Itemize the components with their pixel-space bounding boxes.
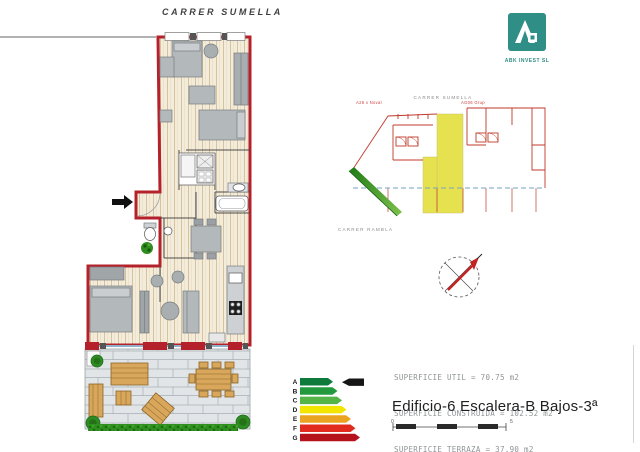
energy-grade-row: F — [293, 425, 355, 433]
svg-text:F: F — [293, 426, 297, 433]
terrace — [85, 342, 250, 431]
hedge — [88, 424, 238, 431]
svg-text:C: C — [293, 398, 298, 405]
building-label-left: A26 x Noval — [356, 100, 382, 105]
energy-grade-row: C — [293, 397, 342, 405]
sofa — [183, 291, 199, 333]
compass-icon — [432, 250, 488, 306]
scale-min: 0 — [391, 419, 394, 425]
desk — [160, 57, 174, 77]
scale-max: 5 — [510, 419, 513, 425]
highlight-unit — [423, 114, 463, 213]
stove — [229, 301, 242, 315]
kitchen-counter — [227, 266, 244, 334]
toilet — [144, 223, 156, 241]
wardrobe — [140, 291, 149, 333]
kitchen-unit — [179, 153, 215, 185]
surface-terrace: SUPERFICIE TERRAZA = 37.90 m2 — [394, 444, 624, 452]
energy-grade-row: D — [293, 406, 347, 414]
company-logo: ABK INVEST SL — [498, 13, 556, 64]
tv-stand — [209, 333, 225, 342]
company-name: ABK INVEST SL — [498, 58, 556, 64]
bed — [172, 41, 202, 77]
drawing-sheet: CARRER SUMELLA — [0, 0, 640, 452]
bed — [199, 110, 245, 140]
dresser — [189, 86, 215, 104]
rating-pointer-icon — [342, 379, 364, 386]
energy-grade-row: B — [293, 387, 338, 395]
wardrobe — [234, 53, 248, 105]
terrace-side-table — [116, 391, 131, 405]
site-street-bottom: CARRER RAMBLA — [338, 227, 393, 232]
chair — [172, 271, 184, 283]
site-plan-drawing: CARRER SUMELLA A26 x Noval AG06 Grup CAR… — [336, 85, 566, 240]
scale-bar: 0 5 — [390, 416, 520, 434]
bathtub — [216, 196, 248, 211]
green-strip — [349, 167, 402, 216]
energy-rating-chart: A B C D E F G — [288, 368, 392, 446]
svg-text:E: E — [293, 416, 298, 423]
svg-text:A: A — [293, 379, 298, 386]
sheet-border-line — [633, 345, 634, 443]
terrace-lounger — [89, 384, 103, 417]
terrace-table — [111, 363, 148, 385]
energy-grade-row: G — [292, 434, 360, 442]
svg-text:D: D — [293, 407, 298, 414]
energy-grade-row: E — [293, 415, 351, 423]
logo-mark-icon — [508, 13, 546, 51]
bathroom-sink — [228, 183, 248, 192]
energy-grade-row: A — [293, 378, 333, 386]
plan-title: Edificio-6 Escalera-B Bajos-3ª — [392, 398, 632, 415]
washbasin — [164, 227, 172, 235]
facade-windows — [165, 33, 245, 41]
building-label-right: AG06 Grup — [461, 100, 485, 105]
entrance-arrow-icon — [112, 195, 133, 209]
surface-useful: SUPERFICIE UTIL = 70.75 m2 — [394, 372, 624, 384]
plant — [141, 242, 153, 254]
svg-text:B: B — [293, 388, 298, 395]
chair — [151, 275, 163, 287]
svg-text:G: G — [292, 435, 297, 442]
cabinet — [160, 110, 172, 122]
green-strip-edge — [349, 171, 397, 216]
chair — [204, 44, 218, 58]
round-table — [161, 302, 179, 320]
